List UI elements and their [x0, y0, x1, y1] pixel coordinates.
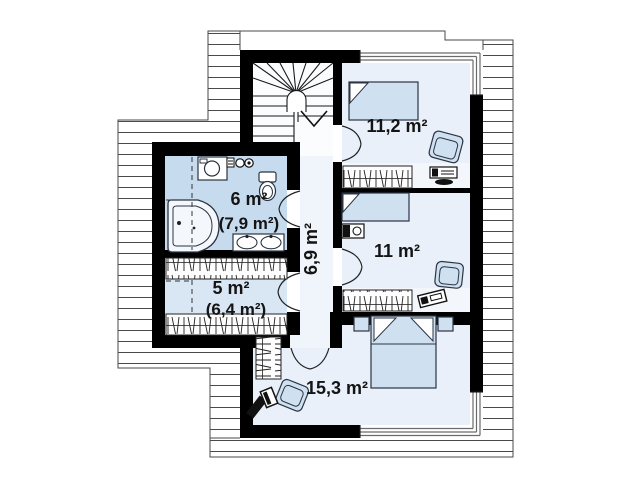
room-area-label: 6,9 m²	[301, 223, 321, 275]
wall-hall-west-1	[287, 156, 300, 190]
room-area-label: 5 m²	[212, 278, 249, 298]
clothes-rack-icon	[166, 258, 287, 279]
wall-east	[470, 50, 483, 438]
cabinet-icon	[342, 224, 364, 238]
wall-bedroom-jamb	[330, 312, 342, 348]
washing-machine-icon	[198, 157, 227, 180]
room-area-label: 15,3 m²	[306, 378, 368, 398]
nightstand-icon	[354, 317, 369, 331]
wall-west	[152, 142, 165, 348]
armchair-icon	[434, 261, 463, 289]
room-area-label: 11 m²	[374, 241, 420, 261]
floor-plan: 11,2 m² 11 m² 15,3 m² 6 m² (7,9 m²) 5 m²…	[0, 0, 640, 489]
single-bed-icon	[342, 193, 409, 221]
wall-wardrobe-south	[152, 335, 253, 348]
clothes-rack-icon	[343, 166, 412, 188]
wall-hall-east-3	[333, 286, 342, 312]
wall-bath-north	[152, 142, 300, 156]
bedroom-door-gap-floor	[290, 335, 330, 348]
wall-hall-east-1	[333, 63, 342, 125]
clothes-rack-icon	[256, 337, 281, 379]
wall-stair-west	[240, 50, 253, 156]
double-sink-icon	[233, 234, 284, 251]
wall-hall-west-2	[287, 228, 300, 272]
room-area-secondary-label: (7,9 m²)	[219, 214, 279, 233]
wall-band-1	[342, 188, 470, 193]
room-area-secondary-label: (6,4 m²)	[206, 300, 266, 319]
wall-hall-west-3	[287, 312, 300, 335]
stair-rail	[287, 91, 306, 112]
room-area-label: 11,2 m²	[366, 116, 427, 136]
clothes-rack-icon	[343, 290, 412, 311]
boiler-icon	[227, 158, 253, 167]
room-area-label: 6 m²	[230, 189, 267, 209]
desk-chair-icon	[435, 179, 453, 185]
wall-bedroom-west	[240, 335, 253, 438]
nightstand-icon	[438, 317, 453, 331]
double-bed-icon	[371, 316, 436, 388]
single-bed-icon	[349, 82, 418, 120]
wall-hall-east-2	[333, 162, 342, 248]
bathtub-icon	[168, 200, 219, 252]
